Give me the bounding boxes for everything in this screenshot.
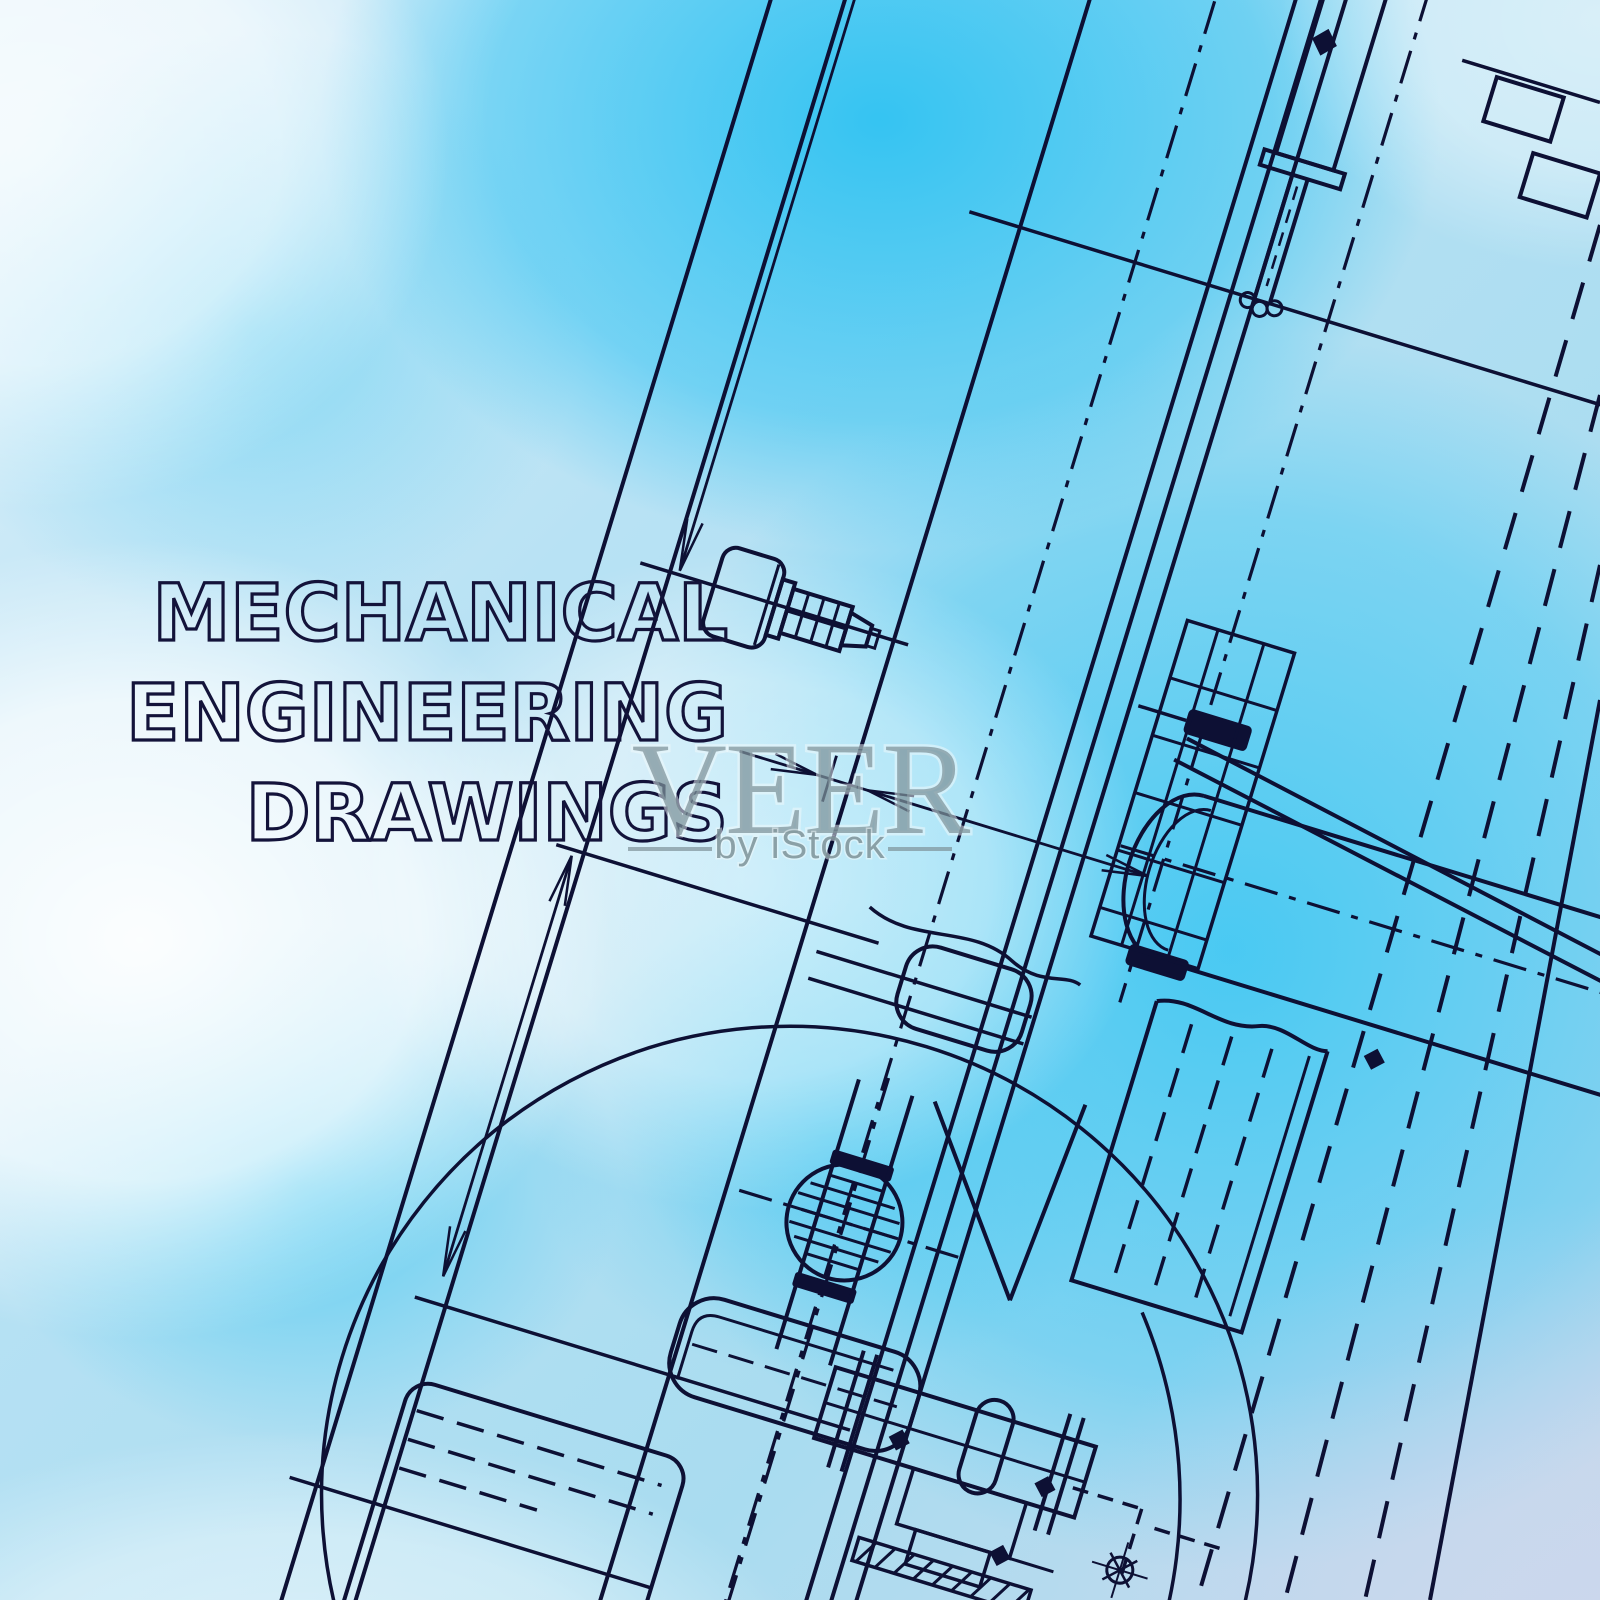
blueprint-illustration: MECHANICAL ENGINEERING DRAWINGS VEER by … bbox=[0, 0, 1600, 1600]
title-line-1: MECHANICAL bbox=[153, 569, 728, 659]
watermark: VEER by iStock bbox=[628, 715, 970, 867]
stock-blueprint-image: MECHANICAL ENGINEERING DRAWINGS VEER by … bbox=[0, 0, 1600, 1600]
watermark-byline: by iStock bbox=[714, 823, 885, 867]
